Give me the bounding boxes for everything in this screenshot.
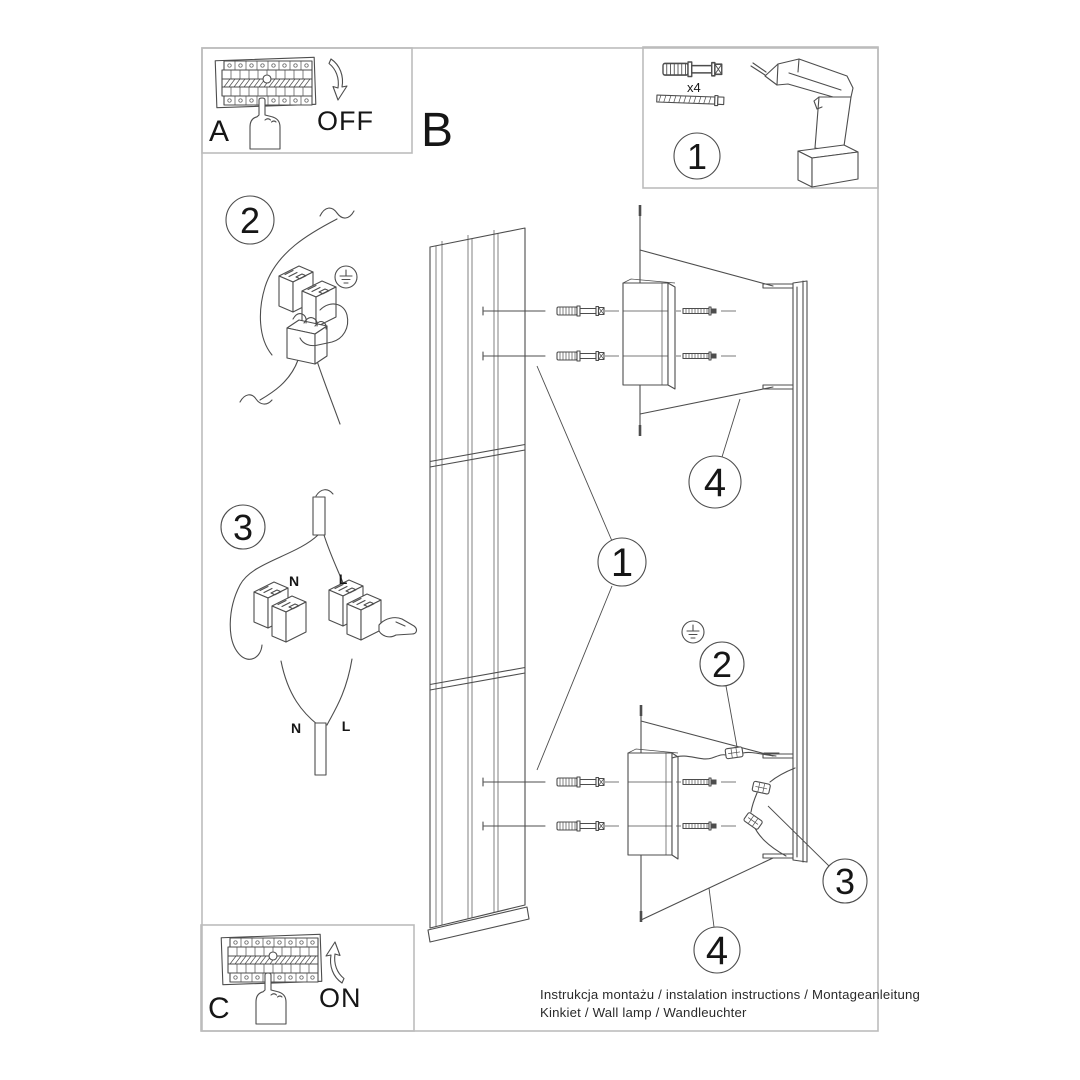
- terminal-block-icon: [347, 594, 381, 640]
- mounting-bracket-bottom: 2 3 4: [557, 621, 867, 973]
- tools-box: x4 1: [643, 47, 878, 188]
- screw-icon: [683, 822, 717, 830]
- cable-top: [313, 497, 325, 535]
- callout-bracket-top-number: 4: [704, 461, 726, 505]
- callout-tools: 1: [674, 133, 720, 179]
- screw-icon: [657, 94, 724, 106]
- n-label-bottom: N: [291, 720, 301, 736]
- callout-lamp-number: 1: [611, 541, 633, 585]
- footer: Instrukcja montażu / instalation instruc…: [540, 987, 920, 1020]
- callout-step3-number: 3: [233, 507, 253, 548]
- ground-symbol-icon: [682, 621, 704, 643]
- wall-plug-icon: [557, 777, 604, 787]
- callout-step2-number: 2: [240, 200, 260, 241]
- screw-icon: [683, 307, 717, 315]
- l-label-bottom: L: [342, 718, 351, 734]
- bracket-side: [668, 283, 675, 389]
- callout-bracket-bottom: 4: [694, 927, 740, 973]
- anchor-quantity: x4: [687, 80, 701, 95]
- wire-down-right: [316, 358, 340, 424]
- wall-plug-icon: [557, 351, 604, 361]
- outer-frame: [202, 48, 878, 1031]
- wall-plug-icon: [557, 306, 604, 316]
- panel-b-label: B: [421, 104, 453, 157]
- wire-down-left: [260, 360, 298, 400]
- instruction-diagram: A OFF B x4 1: [0, 0, 1080, 1080]
- rail-tabs: [763, 754, 793, 858]
- installation-instructions-page: A OFF B x4 1: [0, 0, 1080, 1080]
- wire-break-top: [320, 208, 354, 218]
- rail-tabs: [763, 284, 793, 389]
- drill-icon: [751, 59, 858, 187]
- bracket-side: [672, 753, 678, 859]
- cable-connector-icon: [752, 781, 771, 794]
- on-label: ON: [319, 983, 362, 1013]
- arrow-up-icon: [326, 942, 344, 983]
- callout-lamp-body: 1: [598, 538, 646, 586]
- terminal-block-icon: [272, 596, 306, 642]
- connector-wires: [751, 768, 795, 856]
- wall-plug-icon: [557, 821, 604, 831]
- callout-ground-wire: 2: [700, 642, 744, 686]
- callout-tools-number: 1: [687, 136, 707, 177]
- wire-from-l: [327, 659, 352, 725]
- leader-lines: [537, 366, 829, 927]
- off-label: OFF: [317, 106, 374, 136]
- callout-connectors: 3: [823, 859, 867, 903]
- callout-connectors-number: 3: [835, 861, 855, 902]
- callout-ground-wire-number: 2: [712, 644, 732, 685]
- callout-bracket-bottom-number: 4: [706, 929, 728, 973]
- wall-plug-icon: [663, 62, 722, 77]
- pointing-hand-icon: [379, 618, 416, 637]
- wall-rail: [793, 281, 807, 862]
- cable-connector-icon: [743, 812, 763, 830]
- panel-a-label: A: [209, 115, 229, 148]
- callout-step3: 3: [221, 505, 265, 549]
- screw-icon: [683, 778, 717, 786]
- l-label-top: L: [339, 571, 348, 587]
- arrow-down-icon: [329, 59, 347, 100]
- callout-bracket-top: 4: [689, 456, 741, 508]
- n-label-top: N: [289, 573, 299, 589]
- panel-a-power-off: A OFF: [202, 48, 412, 153]
- bracket-body: [623, 283, 668, 385]
- step3-wiring-diagram: N L N L 3: [221, 490, 416, 775]
- cable-break-top: [316, 490, 333, 496]
- cable-connector-icon: [725, 747, 743, 759]
- lamp-profile: [428, 228, 545, 942]
- panel-c-power-on: C ON: [201, 925, 414, 1031]
- bracket-body: [628, 753, 672, 855]
- lamp-body: [430, 228, 525, 928]
- screw-icon: [683, 352, 717, 360]
- footer-line1: Instrukcja montażu / instalation instruc…: [540, 987, 920, 1002]
- footer-line2: Kinkiet / Wall lamp / Wandleuchter: [540, 1005, 747, 1020]
- mounting-bracket-top: 4: [557, 205, 793, 508]
- panel-c-label: C: [208, 992, 230, 1025]
- callout-step2: 2: [226, 196, 274, 244]
- step2-wiring-diagram: 2: [226, 196, 357, 424]
- wire-from-n: [281, 661, 318, 725]
- cable-bottom: [315, 723, 326, 775]
- ground-symbol-icon: [335, 266, 357, 288]
